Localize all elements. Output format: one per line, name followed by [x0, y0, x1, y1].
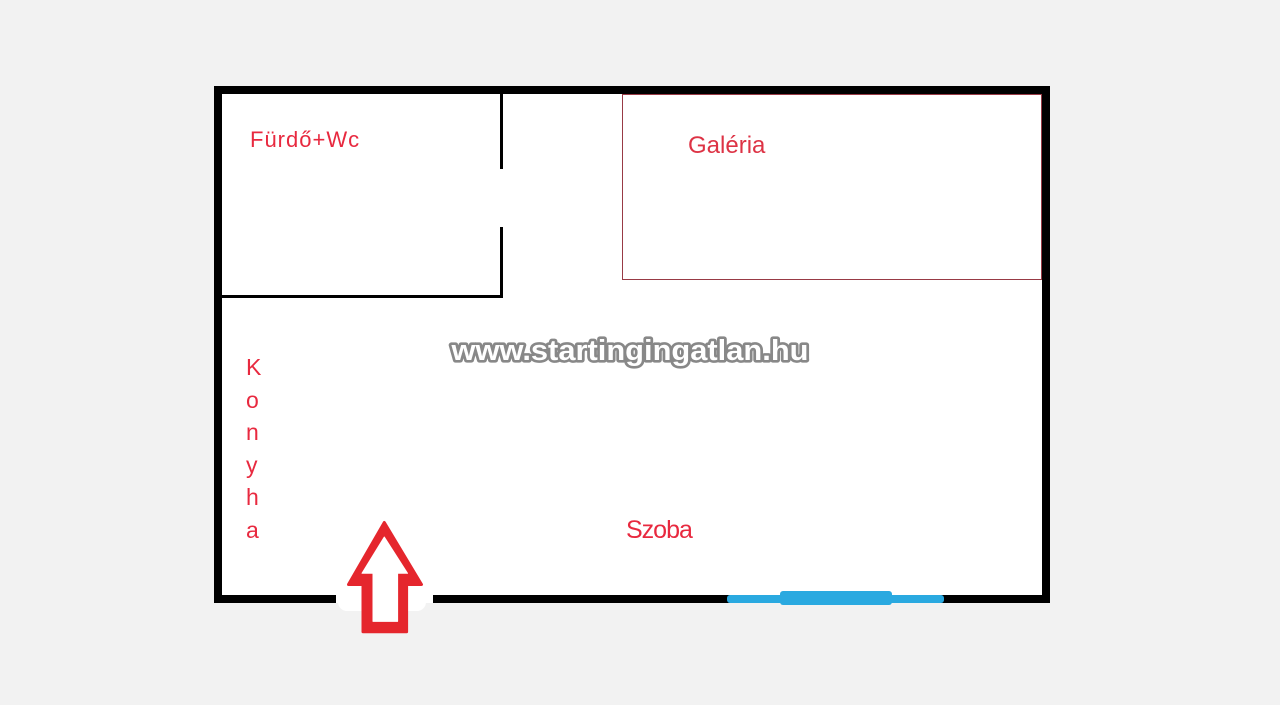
svg-text:www.startingingatlan.hu: www.startingingatlan.hu	[450, 335, 808, 367]
